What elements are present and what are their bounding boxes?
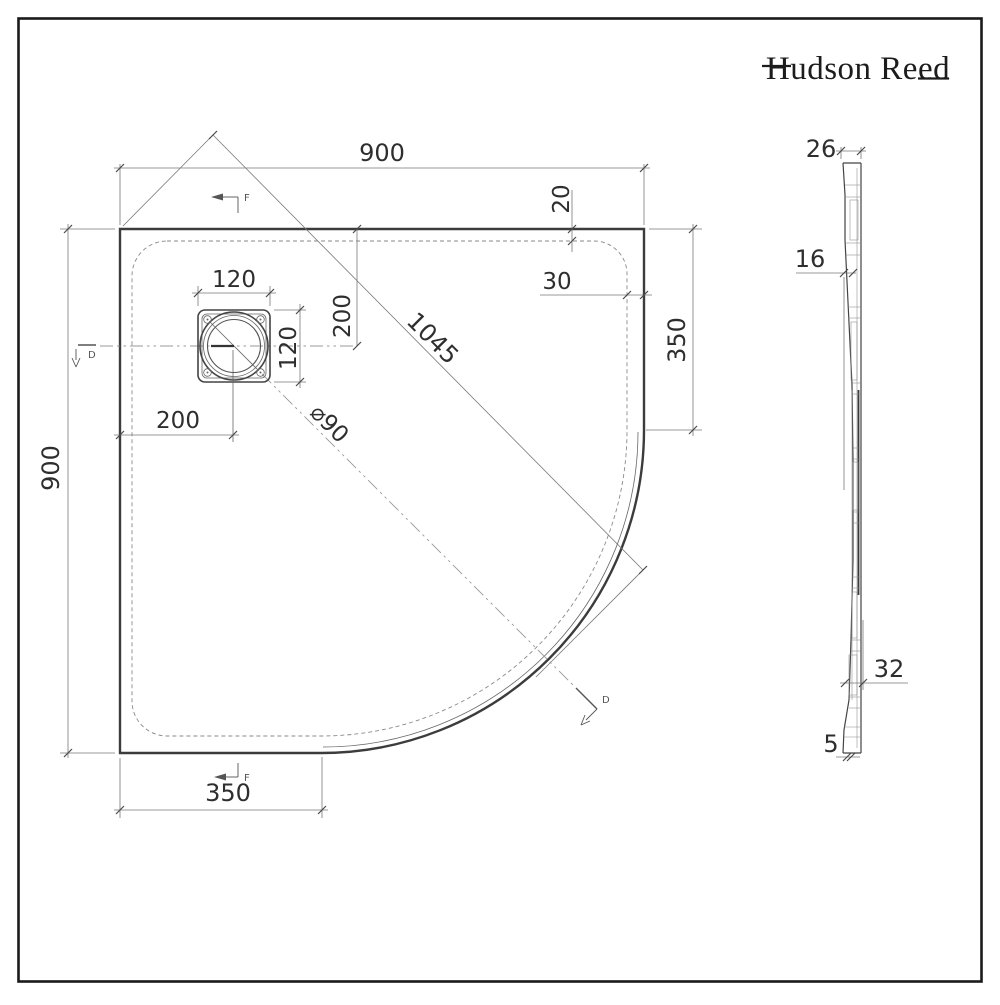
dim-side-bottom-lip: 5 (823, 730, 860, 761)
dim-right-corner-height: 350 (646, 224, 702, 436)
side-view: 26 16 32 5 (795, 135, 908, 761)
section-marker-f-bottom-label: F (244, 773, 250, 784)
drawing-sheet: Hudson Reed (0, 0, 1000, 1000)
dim-top-width-label: 900 (359, 139, 405, 167)
dim-drain-offset-left-label: 200 (156, 408, 200, 434)
sheet-border (19, 19, 982, 982)
dim-drain-offset-left: 200 (114, 408, 239, 439)
dim-right-corner-height-label: 350 (663, 317, 691, 363)
dim-side-bottom-lip-label: 5 (823, 730, 838, 758)
section-marker-d-bottom: D (576, 688, 610, 725)
dim-drain-width-label: 120 (212, 267, 256, 293)
dim-side-mid-thickness: 16 (795, 245, 857, 490)
dim-side-top-thickness-label: 26 (806, 135, 837, 163)
section-marker-d-left: D (72, 345, 96, 367)
tray-inner-rim-dashed (132, 241, 627, 736)
dim-drain-width: 120 (192, 267, 276, 306)
dim-side-bottom-depth-label: 32 (874, 655, 905, 683)
logo: Hudson Reed (762, 51, 950, 87)
section-marker-f-top-label: F (244, 193, 250, 204)
dim-rim-top-label: 20 (549, 184, 575, 213)
dim-rim-top: 20 (549, 184, 576, 252)
dim-diagonal-label: 1045 (401, 307, 464, 370)
dim-left-height-label: 900 (37, 445, 65, 491)
dim-left-height: 900 (37, 224, 115, 758)
dim-side-top-thickness: 26 (806, 135, 866, 163)
dim-bottom-corner-width: 350 (114, 757, 328, 818)
technical-drawing: Hudson Reed (0, 0, 1000, 1000)
section-marker-f-top: F (211, 193, 250, 213)
plan-view: 900 900 350 350 (37, 131, 702, 818)
logo-text: Hudson Reed (766, 51, 950, 87)
drain-waste (198, 310, 270, 442)
section-marker-d-left-label: D (88, 350, 96, 361)
dim-drain-height-label: 120 (276, 326, 302, 370)
dim-drain-offset-top-label: 200 (330, 294, 356, 338)
dim-drain-offset-top: 200 (330, 225, 361, 350)
dim-rim-right-label: 30 (542, 269, 571, 295)
section-marker-d-bottom-label: D (602, 695, 610, 706)
dim-rim-right: 30 (540, 269, 652, 299)
dim-side-mid-thickness-label: 16 (795, 245, 826, 273)
dim-drain-diameter-label: ⌀90 (305, 400, 354, 449)
tray-curve-inner-edge (323, 432, 638, 747)
side-profile (843, 163, 861, 753)
dim-drain-height: 120 (274, 304, 306, 388)
